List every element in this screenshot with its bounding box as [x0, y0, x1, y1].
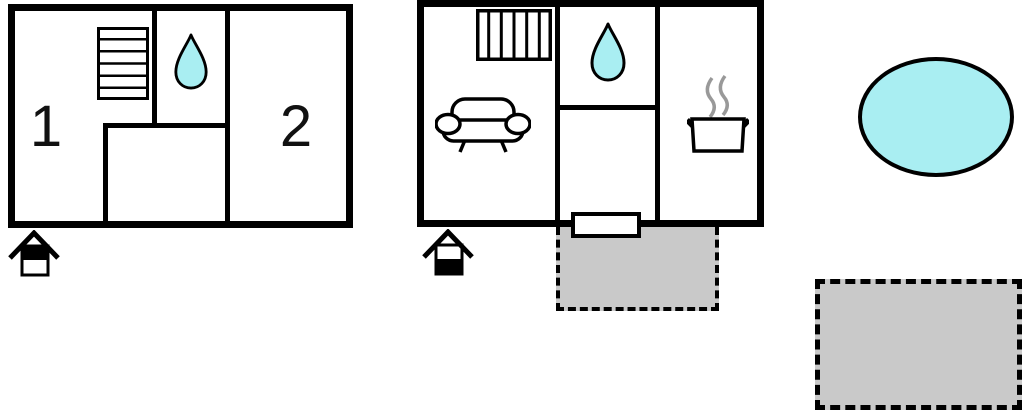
steam-icon	[707, 78, 714, 117]
wall	[152, 11, 157, 127]
sofa-icon	[435, 97, 531, 153]
wall	[655, 7, 660, 220]
pond	[858, 57, 1014, 177]
terrace-area	[556, 227, 719, 311]
staircase-icon	[476, 9, 552, 61]
upper-floor-indicator-icon	[8, 230, 60, 278]
ground-floor-indicator-icon	[422, 229, 474, 277]
room-label-1: 1	[23, 97, 69, 157]
room-label-2: 2	[271, 97, 321, 157]
wall	[225, 11, 230, 221]
patio-area	[815, 279, 1022, 410]
wall	[103, 123, 230, 128]
upper-floor-plan: 1 2	[8, 4, 353, 228]
wall	[103, 123, 108, 221]
water-drop-icon	[589, 22, 627, 83]
floor-plan-canvas: 1 2	[0, 0, 1024, 412]
ground-floor-plan	[417, 0, 764, 227]
entrance-door	[571, 212, 641, 238]
cooking-pot-icon	[687, 73, 749, 153]
water-drop-icon	[173, 33, 209, 91]
staircase-icon	[97, 27, 149, 100]
wall	[555, 7, 560, 220]
wall	[560, 105, 655, 110]
steam-icon	[720, 76, 727, 115]
